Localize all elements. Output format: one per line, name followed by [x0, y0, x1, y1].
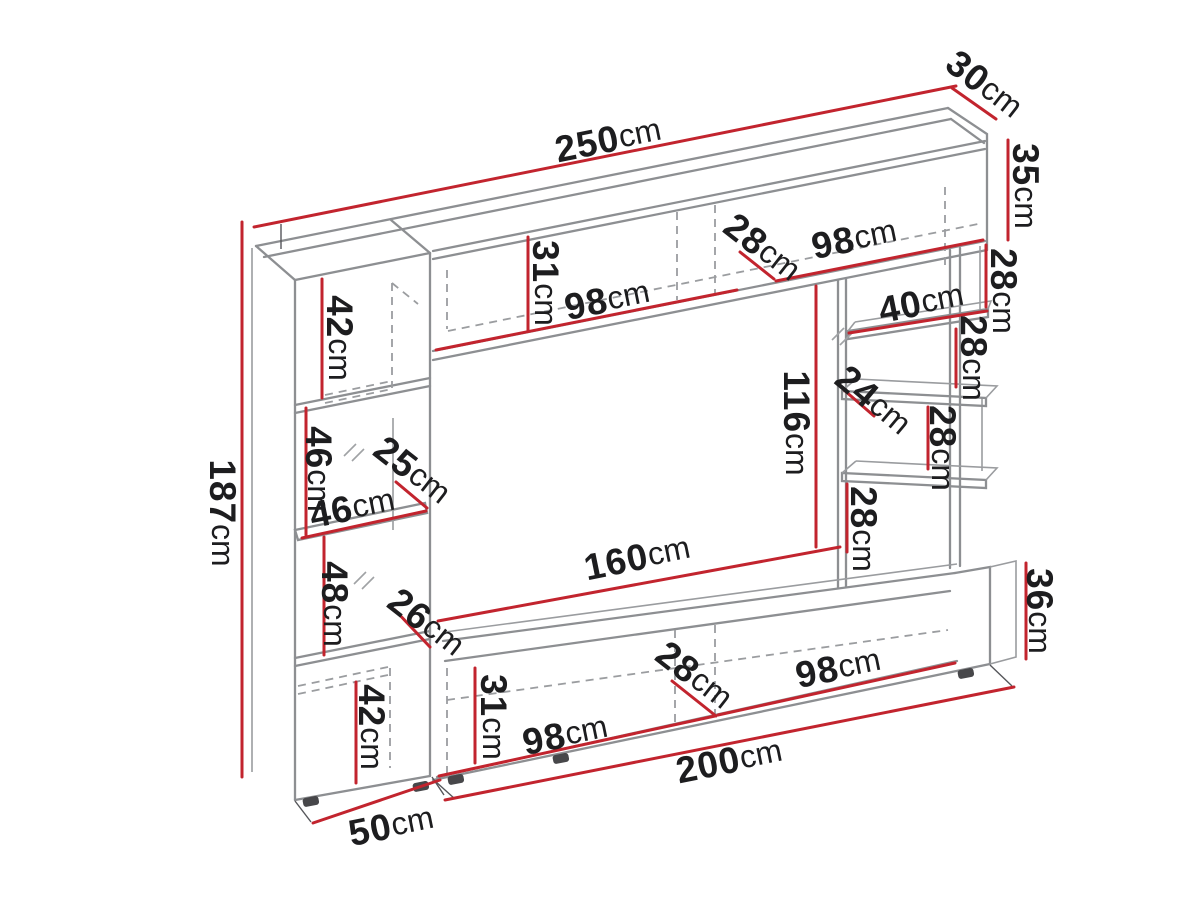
- bottom-cabinet-right-back: [990, 561, 1016, 664]
- left-divider-2a: [295, 631, 430, 658]
- label-left-lower-niche-depth: 26cm: [381, 579, 474, 664]
- label-left-bottom-section: 42cm: [352, 684, 393, 770]
- label-bottom-middle-compartment: 28cm: [649, 632, 742, 717]
- label-unit-height: 187cm: [203, 459, 244, 566]
- glass-hatch-lower-icon: [354, 572, 374, 589]
- wall-unit-drawing: 250cm 30cm 35cm 187cm 42cm 31cm 98cm 28c…: [0, 0, 1200, 899]
- left-column-top-face: [256, 246, 430, 280]
- label-right-gap-4: 28cm: [844, 486, 885, 572]
- label-top-cabinet-height: 35cm: [1006, 143, 1047, 229]
- label-right-gap-3: 28cm: [923, 405, 964, 491]
- bottom-cabinet-top-back: [445, 564, 957, 632]
- label-top-depth: 30cm: [939, 41, 1032, 126]
- label-tv-niche-height: 116cm: [777, 370, 818, 475]
- label-top-interior-height: 31cm: [526, 240, 567, 326]
- label-left-top-section: 42cm: [320, 295, 361, 381]
- label-bottom-cabinet-height: 36cm: [1020, 568, 1061, 654]
- top-cabinet-opening-top-b: [433, 149, 985, 259]
- furniture-dimension-diagram: 250cm 30cm 35cm 187cm 42cm 31cm 98cm 28c…: [0, 0, 1200, 899]
- label-bottom-interior-height: 31cm: [474, 674, 515, 760]
- right-shelf-3-left-cap: [842, 461, 856, 473]
- label-right-gap-2: 28cm: [954, 315, 995, 401]
- dimension-labels: 250cm 30cm 35cm 187cm 42cm 31cm 98cm 28c…: [203, 41, 1061, 853]
- top-cabinet-right-end-inner: [951, 119, 984, 143]
- top-cabinet-opening-top-a: [433, 141, 985, 251]
- label-bottom-right-compartment: 98cm: [792, 638, 884, 695]
- label-left-lower-glass-section: 48cm: [315, 561, 356, 647]
- left-top-section-depth-dashed: [392, 283, 418, 304]
- bottom-cabinet-right-end: [955, 567, 990, 664]
- glass-hatch-upper-icon: [344, 444, 364, 461]
- label-bottom-left-compartment: 98cm: [519, 705, 611, 762]
- label-bottom-cabinet-width: 200cm: [672, 729, 785, 791]
- top-cabinet-right-end: [948, 108, 987, 250]
- left-divider-2b: [295, 639, 430, 666]
- label-total-width: 250cm: [551, 108, 664, 170]
- leader-bottom-right: [990, 665, 1012, 686]
- left-divider-1b: [295, 386, 430, 413]
- label-left-column-width: 50cm: [345, 796, 437, 853]
- left-divider-1a: [295, 378, 430, 405]
